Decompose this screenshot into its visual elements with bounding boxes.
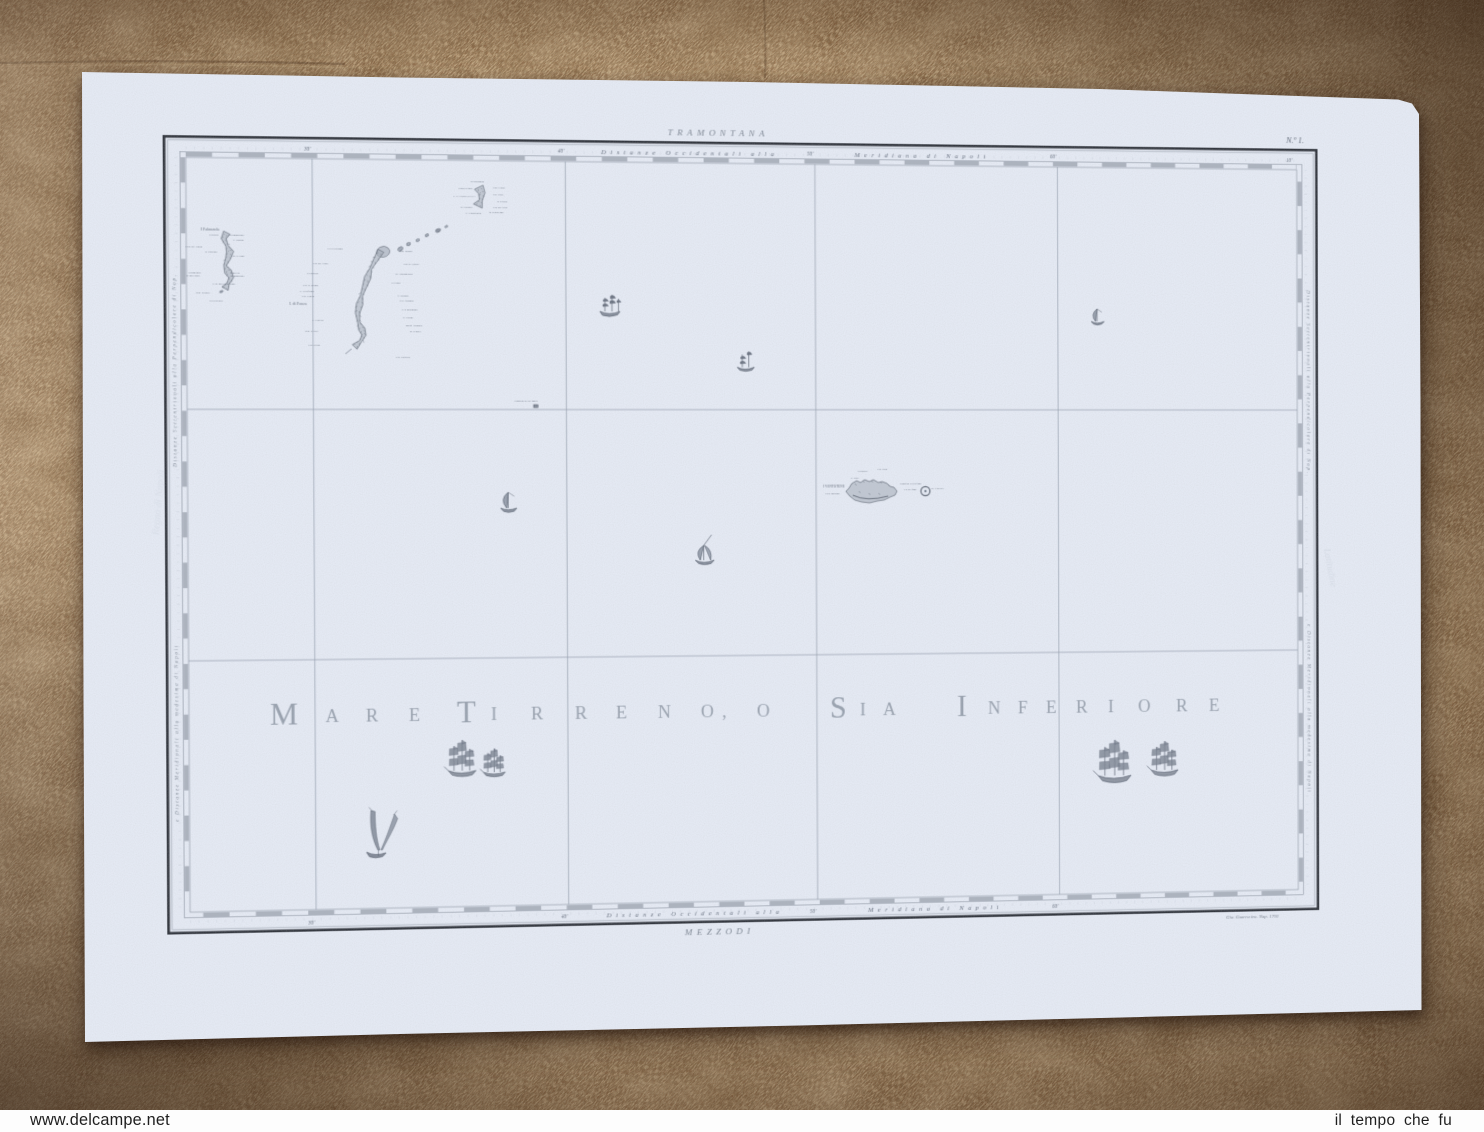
svg-text:30′: 30′ [304, 147, 311, 153]
svg-text:I Palmarola: I Palmarola [201, 228, 220, 232]
svg-text:F: F [1018, 700, 1028, 719]
svg-text:E: E [409, 707, 420, 726]
svg-text:e Distanze Meridionali alla: e Distanze Meridionali alla medesima di … [1306, 624, 1312, 793]
svg-text:P.ta Fieno: P.ta Fieno [308, 344, 320, 347]
svg-text:Cala rossano: Cala rossano [825, 493, 840, 496]
svg-text:C. Rosso: C. Rosso [233, 239, 244, 242]
svg-text:A: A [325, 708, 339, 727]
svg-text:R: R [1176, 698, 1188, 717]
svg-text:P.S.Antonio: P.S.Antonio [400, 300, 414, 303]
svg-text:le Carine: le Carine [403, 316, 414, 319]
svg-text:I: I [1108, 699, 1114, 718]
svg-text:N: N [658, 704, 671, 723]
svg-text:MEZZODI: MEZZODI [684, 927, 754, 938]
svg-text:60′: 60′ [1052, 905, 1059, 911]
svg-text:P.Tramontana: P.Tramontana [228, 234, 245, 237]
svg-text:C.la Gaetano: C.la Gaetano [327, 247, 343, 250]
svg-text:P.del Fieno: P.del Fieno [231, 255, 245, 258]
svg-text:C. Purgatorio: C. Purgatorio [466, 212, 482, 215]
svg-text:S: S [830, 691, 847, 724]
svg-text:P.ta Giglio: P.ta Giglio [302, 295, 315, 298]
svg-text:R: R [531, 706, 544, 725]
svg-text:Meridiana di Napoli: Meridiana di Napoli [867, 904, 1003, 913]
svg-text:P.Guardia: P.Guardia [307, 272, 319, 275]
svg-text:Scoglio della Botte: Scoglio della Botte [514, 400, 538, 403]
svg-text:Tramontana: Tramontana [230, 275, 245, 278]
svg-text:I. VANDOTENA: I. VANDOTENA [453, 194, 476, 198]
svg-text:T: T [457, 695, 476, 729]
svg-text:Sco. d Ova: Sco. d Ova [305, 330, 319, 333]
svg-text:30′: 30′ [308, 921, 315, 927]
svg-text:la Parata: la Parata [497, 200, 508, 203]
svg-text:Calanave: Calanave [858, 470, 869, 473]
svg-text:P.ta Scotti: P.ta Scotti [209, 299, 223, 303]
svg-text:Distanze Settentrionali alla: Distanze Settentrionali alla Perpendicol… [171, 273, 178, 468]
svg-text:Sco. Suvace: Sco. Suvace [196, 291, 211, 294]
svg-text:50′: 50′ [810, 910, 817, 916]
svg-text:P. d Madonna: P. d Madonna [402, 308, 419, 311]
svg-text:I: I [860, 702, 866, 721]
svg-text:P.ta del Papa: P.ta del Papa [313, 262, 329, 265]
svg-text:O: O [757, 703, 770, 722]
svg-text:P.del Varo: P.del Varo [493, 186, 505, 189]
svg-text:C. Chiaia: C. Chiaia [312, 319, 324, 322]
svg-text:40′: 40′ [561, 915, 568, 921]
svg-text:C. Mauro: C. Mauro [398, 295, 410, 298]
svg-text:40′: 40′ [558, 149, 565, 155]
svg-text:50′: 50′ [807, 152, 814, 158]
svg-text:Molo Antonio: Molo Antonio [406, 324, 423, 327]
svg-text:P. Nave: P. Nave [851, 477, 860, 480]
svg-text:P.ta Guardia: P.ta Guardia [396, 356, 411, 359]
svg-text:la Calcara: la Calcara [460, 206, 472, 209]
svg-text:Sc.Rotondo: Sc.Rotondo [471, 180, 485, 183]
svg-text:I.S.Stefano: I.S.Stefano [904, 488, 917, 491]
svg-text:e Distanze Meridionali alla: e Distanze Meridionali alla medesima di … [174, 644, 181, 822]
svg-text:E: E [1209, 697, 1220, 716]
svg-text:I. di Ponza: I. di Ponza [289, 302, 306, 306]
svg-text:Sco. Rosso: Sco. Rosso [399, 250, 412, 253]
svg-text:lo Schiavone: lo Schiavone [489, 212, 505, 215]
svg-text:60′: 60′ [1050, 155, 1057, 161]
svg-text:O: O [1138, 698, 1151, 717]
svg-text:N: N [988, 700, 1001, 719]
svg-text:Distanze Settentrionali alla: Distanze Settentrionali alla Perpendicol… [1305, 289, 1311, 474]
svg-text:dei Conti: dei Conti [410, 330, 421, 333]
svg-text:la Forcina: la Forcina [205, 251, 218, 254]
svg-text:R: R [1076, 699, 1088, 718]
svg-text:Cal Nave: Cal Nave [493, 193, 504, 196]
svg-text:Distanze Occidentali alla: Distanze Occidentali alla [606, 909, 784, 919]
svg-text:Cala del Porto: Cala del Porto [185, 245, 203, 248]
svg-text:E: E [1046, 699, 1057, 718]
svg-text:I: I [491, 706, 497, 725]
svg-text:Sc. Cavallo: Sc. Cavallo [931, 487, 944, 490]
svg-text:M: M [270, 697, 298, 731]
svg-text:Sc. Spalmatore: Sc. Spalmatore [395, 273, 413, 276]
svg-text:A: A [883, 701, 896, 720]
svg-text:P. di Mezzo giorno: P. di Mezzo giorno [213, 283, 236, 286]
svg-text:I: I [957, 690, 967, 723]
svg-text:E: E [616, 705, 627, 724]
svg-text:P.delle Grotte: P.delle Grotte [404, 263, 421, 266]
svg-text:P.ta du Arco: P.ta du Arco [493, 207, 508, 210]
svg-text:P.ta la Forma: P.ta la Forma [303, 284, 319, 287]
svg-text:TRAMONTANA: TRAMONTANA [668, 128, 769, 139]
svg-text:C. d Inferno: C. d Inferno [300, 290, 315, 293]
svg-text:Scoglio S.Stefano: Scoglio S.Stefano [900, 482, 922, 485]
svg-text:Gia. Guerra inc. Nap. 1792: Gia. Guerra inc. Nap. 1792 [1226, 914, 1279, 921]
svg-text:I VENTOTENE: I VENTOTENE [823, 485, 844, 489]
svg-text:R: R [366, 707, 379, 726]
svg-text:Capo Negro: Capo Negro [458, 188, 472, 191]
svg-text:,: , [722, 703, 727, 722]
svg-text:di Mezzodi: di Mezzodi [186, 275, 199, 278]
svg-text:R: R [575, 705, 588, 724]
svg-text:S.Maria: S.Maria [209, 234, 219, 237]
svg-text:N.º 1.: N.º 1. [1285, 135, 1304, 145]
svg-text:O: O [701, 703, 714, 722]
svg-text:il Cuore: il Cuore [391, 282, 401, 285]
svg-text:P.ta Eolo: P.ta Eolo [877, 469, 888, 472]
svg-text:10′: 10′ [1286, 158, 1293, 164]
